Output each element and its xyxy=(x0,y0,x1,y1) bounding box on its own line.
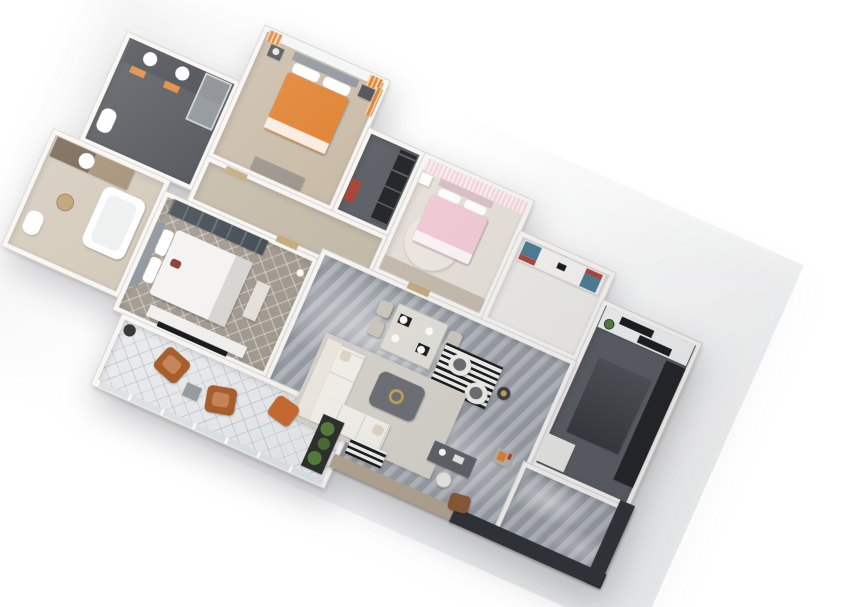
leather-armchair-cushion xyxy=(211,391,230,408)
apartment-plan xyxy=(0,0,804,607)
floorplan-render xyxy=(0,0,844,607)
